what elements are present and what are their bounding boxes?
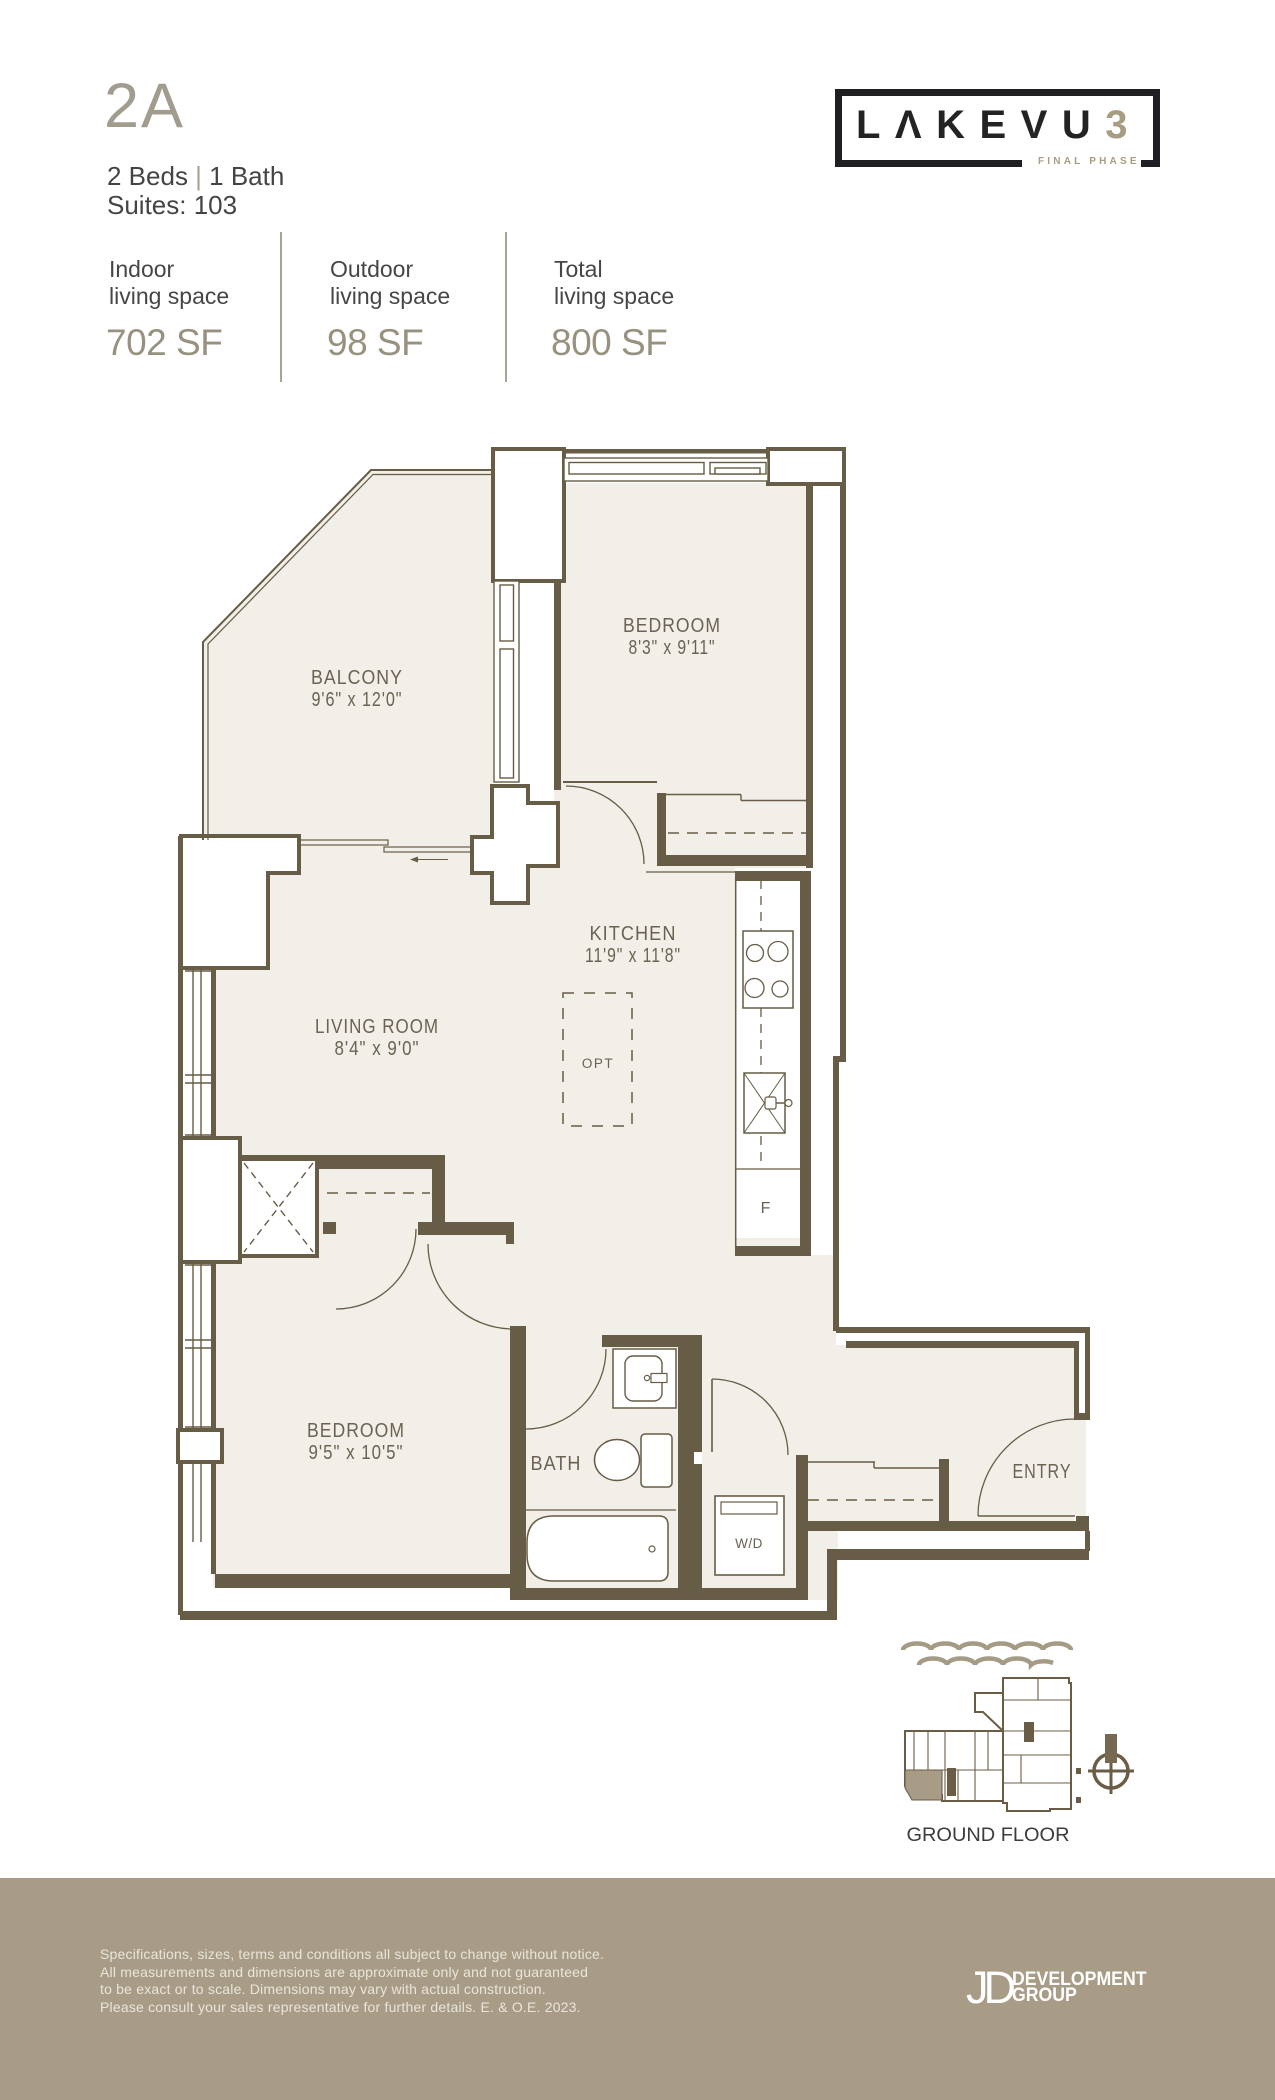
svg-text:GROUND FLOOR: GROUND FLOOR <box>907 1824 1070 1846</box>
svg-text:9'6" x 12'0": 9'6" x 12'0" <box>312 688 403 711</box>
svg-text:KITCHEN: KITCHEN <box>590 922 677 945</box>
svg-text:11'9" x 11'8": 11'9" x 11'8" <box>585 944 681 967</box>
svg-text:8'4" x 9'0": 8'4" x 9'0" <box>335 1037 420 1060</box>
svg-text:BEDROOM: BEDROOM <box>307 1419 405 1442</box>
svg-text:9'5" x 10'5": 9'5" x 10'5" <box>309 1441 404 1464</box>
svg-text:BATH: BATH <box>531 1452 582 1475</box>
svg-text:ENTRY: ENTRY <box>1013 1460 1072 1483</box>
svg-text:W/D: W/D <box>735 1536 763 1551</box>
svg-text:BALCONY: BALCONY <box>311 666 403 689</box>
svg-text:LIVING ROOM: LIVING ROOM <box>315 1015 439 1038</box>
svg-text:F: F <box>761 1200 772 1217</box>
svg-text:BEDROOM: BEDROOM <box>623 614 721 637</box>
svg-text:OPT: OPT <box>582 1056 614 1071</box>
svg-text:8'3" x 9'11": 8'3" x 9'11" <box>629 636 716 659</box>
